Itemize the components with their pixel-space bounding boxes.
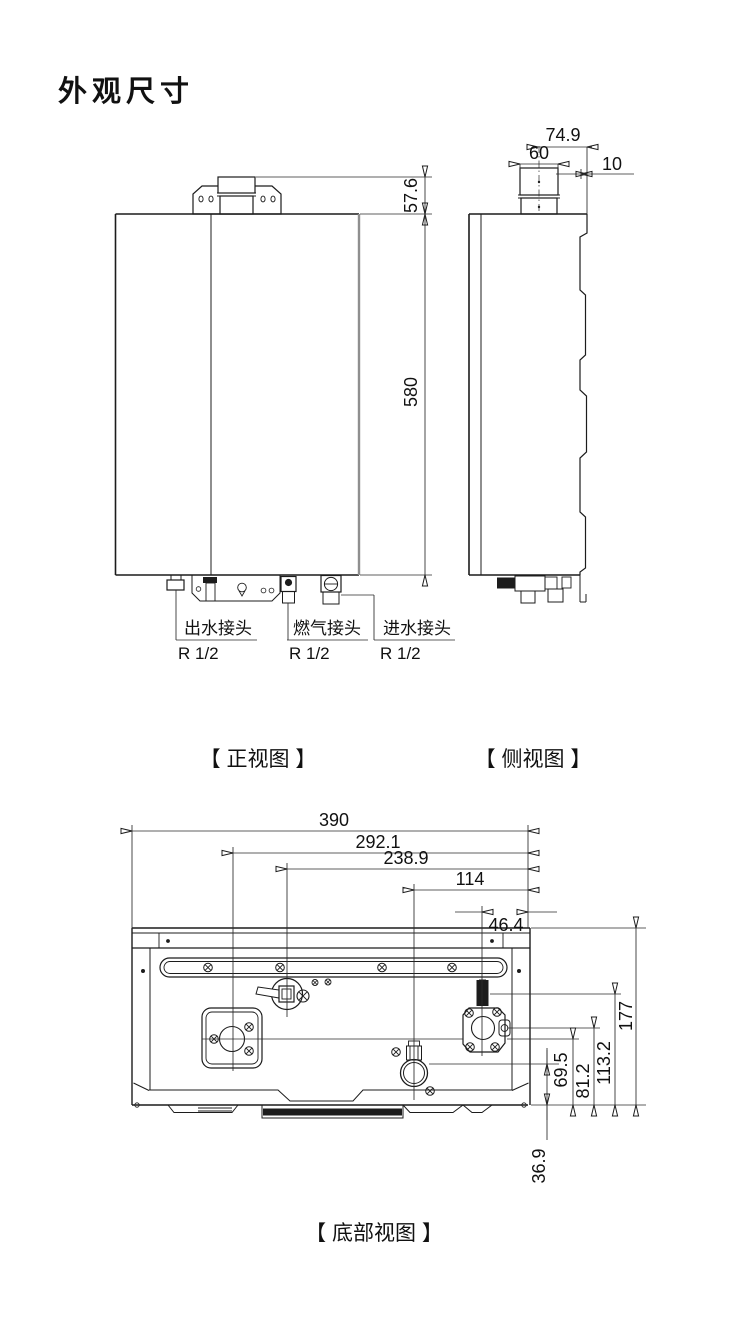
bottom-covers [168,1105,492,1118]
dim-69: 69.5 [551,1052,571,1087]
dim-177: 177 [616,1001,636,1031]
gas-inlet-connector [392,1041,435,1095]
caption-bottom-view: 【 底部视图 】 [305,1222,443,1245]
label-gas-inlet: 燃气接头 [293,619,361,638]
side-view: 74.9 60 10 [469,125,634,603]
bottom-vertical-dimensions [202,928,646,1140]
label-gas-inlet-thread: R 1/2 [289,644,330,663]
dim-front-step: 10 [602,154,622,174]
dim-flue-offset: 74.9 [545,125,580,145]
front-dimensions [256,177,432,575]
dim-113: 113.2 [594,1041,614,1085]
power-cord-connector [256,979,331,1010]
dimension-drawing-page: 外观尺寸 [0,0,750,1340]
dim-flue-width: 60 [529,143,549,163]
dim-width-390: 390 [319,810,349,830]
label-water-inlet: 进水接头 [383,619,451,638]
front-view: 出水接头 R 1/2 燃气接头 R 1/2 进水接头 R 1/2 57.6 58… [116,177,456,663]
label-water-outlet: 出水接头 [184,619,252,638]
bottom-horizontal-dimensions [132,825,557,1100]
front-bottom-connectors [167,575,341,604]
bottom-view: 390 292.1 238.9 114 46.4 [132,810,646,1184]
label-water-outlet-thread: R 1/2 [178,644,219,663]
dim-body-height: 580 [401,377,421,407]
water-valve-assembly [463,980,510,1052]
dim-81: 81.2 [573,1063,593,1098]
dim-238: 238.9 [383,848,428,868]
fan-plate [202,1008,262,1068]
technical-drawing: 出水接头 R 1/2 燃气接头 R 1/2 进水接头 R 1/2 57.6 58… [0,0,750,1340]
caption-side-view: 【 侧视图 】 [475,748,592,771]
dim-flue-height: 57.6 [401,178,421,213]
caption-front-view: 【 正视图 】 [200,748,317,771]
dim-36: 36.9 [529,1148,549,1183]
side-bottom-fittings [497,575,586,603]
dim-114: 114 [456,869,485,889]
dim-46: 46.4 [488,915,523,935]
label-water-inlet-thread: R 1/2 [380,644,421,663]
